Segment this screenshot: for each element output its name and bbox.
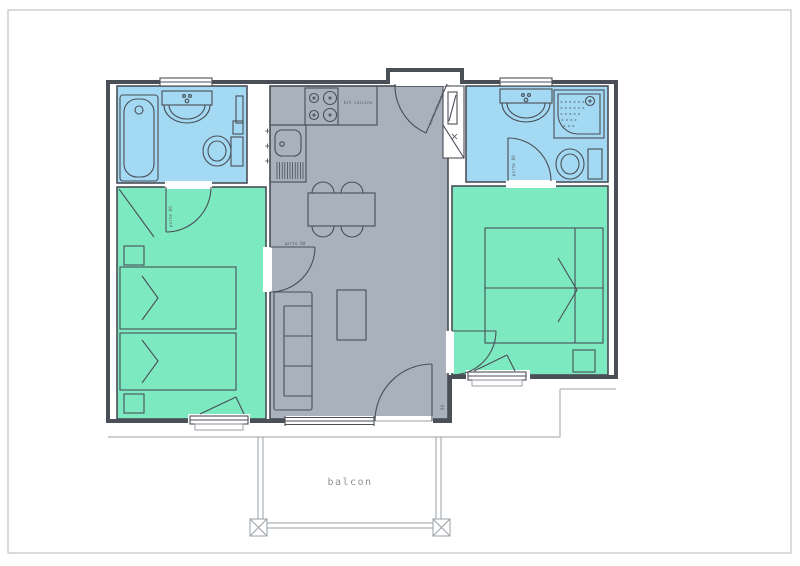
balcony-post [433, 519, 450, 536]
entry-closet [443, 86, 464, 158]
balcony-post [250, 519, 267, 536]
door-label: porte 80 [511, 155, 516, 176]
balcony: balcon [250, 437, 450, 536]
room-bedroom-left [117, 187, 266, 419]
window-bathroom-left [160, 78, 212, 86]
floor-plan: kit cuisine [0, 0, 800, 566]
balcony-label: balcon [327, 477, 372, 488]
room-bathroom-left [117, 86, 247, 183]
door-label: porte 80 [168, 206, 173, 227]
room-bedroom-right [452, 186, 608, 375]
window-bathroom-right [500, 78, 552, 86]
door-label: porte 80 [285, 241, 306, 246]
balcony-door-label: 90 [440, 404, 445, 410]
kitchen-unit-label: kit cuisine [344, 100, 373, 105]
room-living-kitchen [270, 86, 448, 419]
